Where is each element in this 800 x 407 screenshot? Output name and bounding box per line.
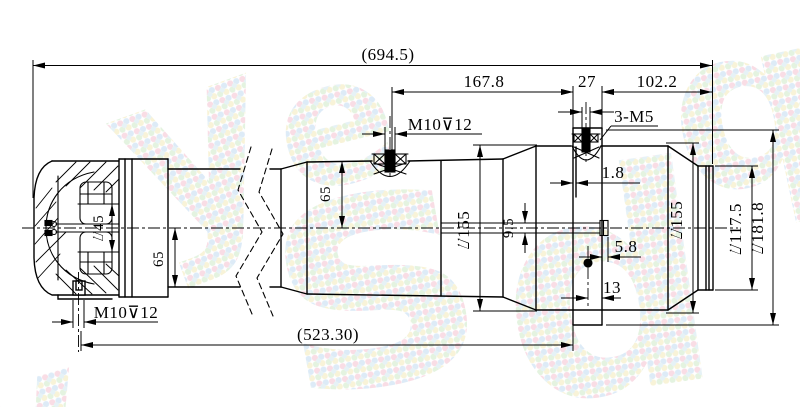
callout-flange-taps: 3-M5 bbox=[614, 107, 654, 126]
dim-mid-radius: 65 bbox=[318, 186, 334, 202]
spindle-technical-drawing: y e s d q y bbox=[0, 0, 800, 407]
dim-flange-width: 27 bbox=[578, 72, 596, 91]
dim-key-to-face: 5.8 bbox=[615, 237, 638, 256]
dim-front-radius: 65 bbox=[151, 251, 167, 267]
dim-overall-length: (694.5) bbox=[361, 45, 414, 64]
dim-body-dia: ⌰155 bbox=[454, 211, 473, 250]
callout-tap-bottom: M10⊽12 bbox=[94, 303, 159, 322]
drawing-page: y e s d q y bbox=[0, 0, 800, 407]
dim-keyway-width: 9.5 bbox=[501, 218, 517, 238]
dim-length-mid: 167.8 bbox=[464, 72, 505, 91]
dim-pilot-dia: ⌰117.5 bbox=[726, 203, 745, 255]
dim-flange-lip: 1.8 bbox=[602, 163, 625, 182]
dim-body-length: (523.30) bbox=[297, 325, 359, 344]
dim-bore-dia: ⌰45 bbox=[91, 215, 107, 241]
dim-flange-dia: ⌰181.8 bbox=[748, 202, 767, 254]
callout-tap-top: M10⊽12 bbox=[408, 115, 473, 134]
dim-hole-to-face: 13 bbox=[603, 278, 621, 297]
dim-length-right: 102.2 bbox=[637, 72, 678, 91]
dim-rear-body-dia: ⌰155 bbox=[667, 201, 686, 240]
